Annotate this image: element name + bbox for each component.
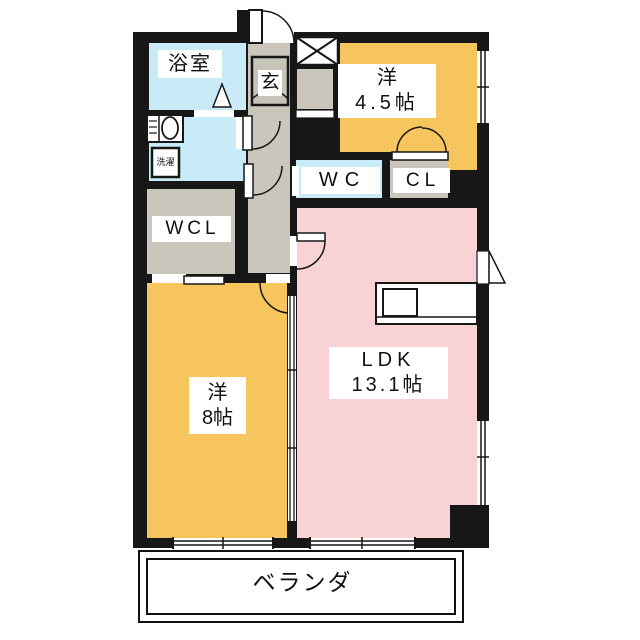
wc-label: WC: [301, 167, 380, 194]
entrance-label: 玄: [258, 70, 282, 96]
laundry-label-text: 洗濯: [156, 157, 174, 168]
wc-label-text: WC: [319, 168, 366, 193]
veranda-label-text: ベランダ: [253, 568, 353, 597]
corner-wall-block: [450, 505, 489, 548]
room8-label: 洋 8帖: [189, 377, 246, 434]
entrance-label-text: 玄: [260, 71, 279, 95]
room-washroom: [149, 117, 246, 181]
room8-size: 8帖: [202, 406, 233, 431]
room8-name: 洋: [208, 381, 228, 406]
cl-label: CL: [393, 168, 450, 193]
wcl-label-text: WCL: [165, 217, 219, 241]
room45-name: 洋: [377, 66, 397, 91]
laundry-label: 洗濯: [154, 156, 177, 169]
ldk-name: LDK: [362, 348, 416, 373]
ldk-label: LDK 13.1帖: [329, 347, 448, 399]
room45-label: 洋 4.5帖: [338, 64, 436, 118]
cl-label-text: CL: [406, 169, 440, 193]
ldk-size: 13.1帖: [352, 373, 426, 398]
veranda-label: ベランダ: [245, 568, 360, 596]
room45-size: 4.5帖: [355, 91, 419, 116]
wcl-label: WCL: [152, 216, 231, 242]
bathroom-label: 浴室: [158, 50, 222, 78]
room-western-45-nook: [448, 152, 477, 170]
floor-plan-canvas: 浴室 洗濯 玄 洋 4.5帖 WC CL WCL 洋 8帖 LDK 13.1帖 …: [0, 0, 640, 640]
bathroom-label-text: 浴室: [168, 52, 212, 77]
